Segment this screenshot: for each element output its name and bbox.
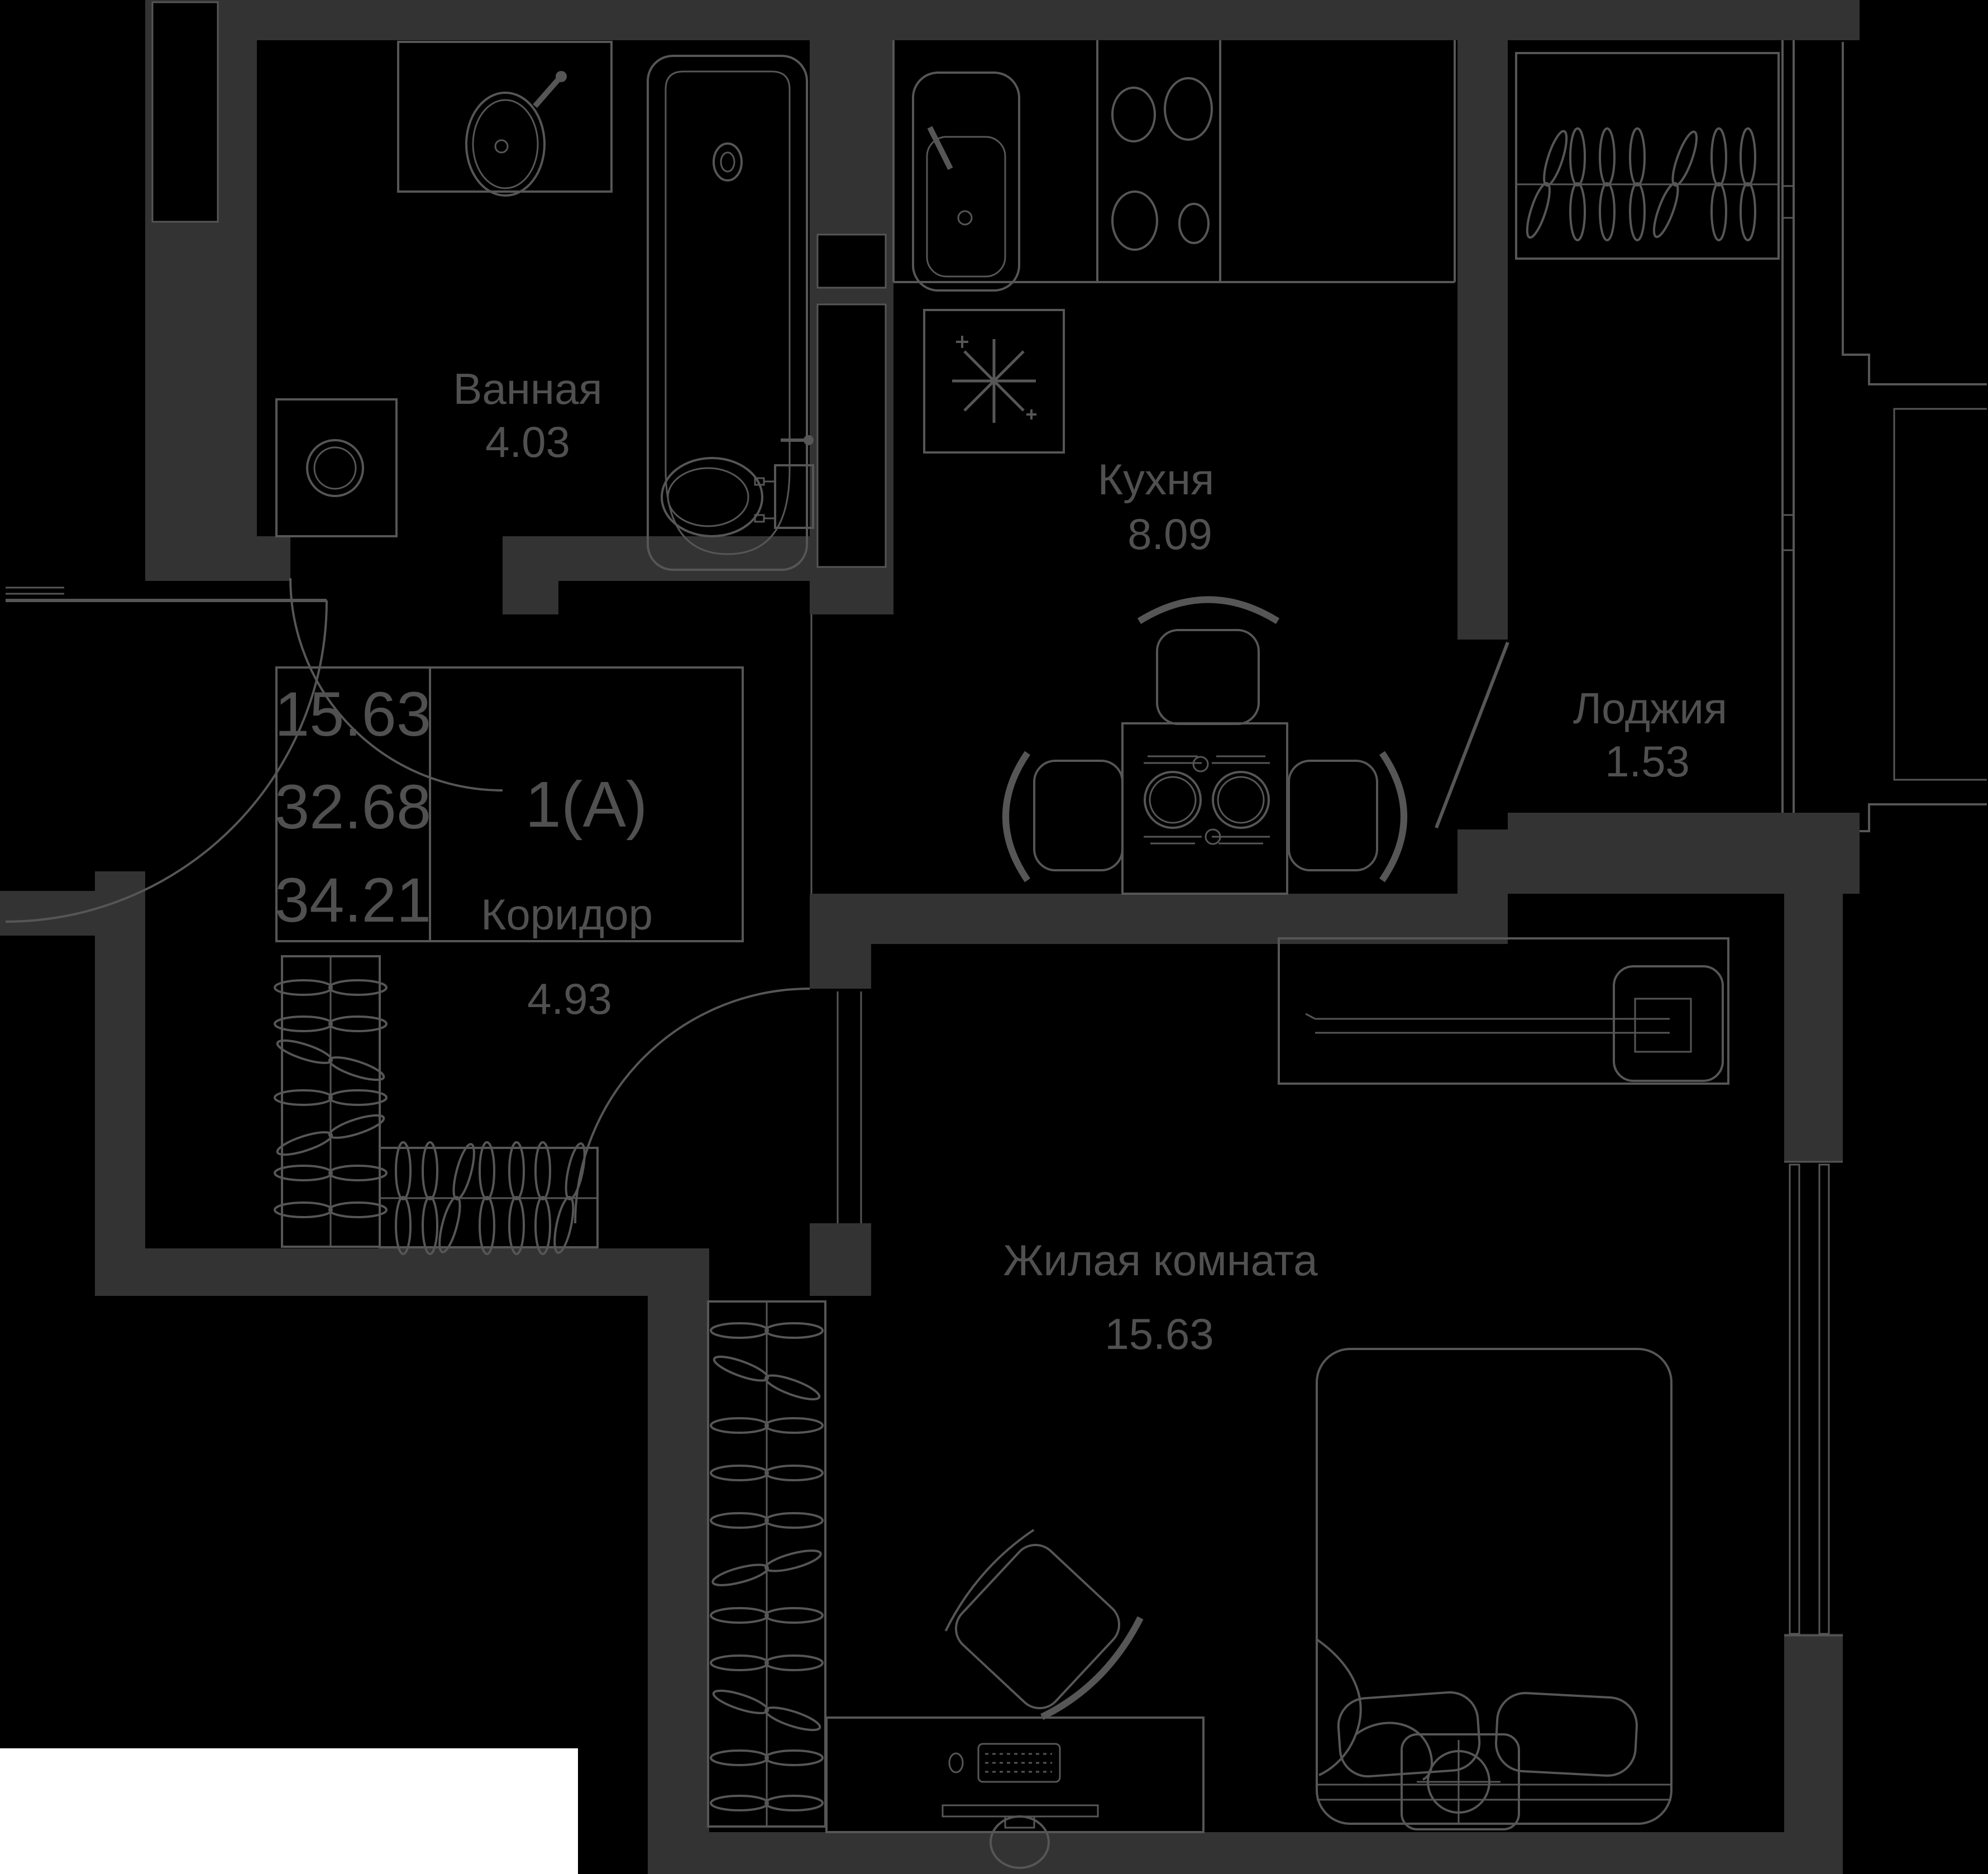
room-area-corridor: 4.93 <box>527 974 612 1023</box>
room-label-bathroom: Ванная <box>453 364 602 413</box>
room-area-loggia: 1.53 <box>1605 737 1690 786</box>
wall-segment <box>1508 813 1860 894</box>
total-area-value: 34.21 <box>275 865 431 935</box>
wall-segment <box>1457 40 1508 640</box>
room-area-kitchen: 8.09 <box>1127 509 1212 559</box>
unit-type-label: 1(А) <box>525 768 647 841</box>
shaft-icon <box>818 304 886 567</box>
apartment-area-value: 32.68 <box>275 772 431 842</box>
corner-block <box>0 1748 578 1874</box>
room-label-living: Жилая комната <box>1003 1236 1318 1285</box>
floor-plan-canvas: 15.63 32.68 34.21 1(А) Ванная 4.03 Кухня… <box>0 0 1988 1874</box>
wall-segment <box>810 944 871 989</box>
room-label-corridor: Коридор <box>481 890 653 939</box>
wall-segment <box>145 0 1860 40</box>
wall-segment <box>95 871 145 1296</box>
wall-segment <box>648 1832 1843 1874</box>
shaft-icon <box>152 2 218 222</box>
wall-segment <box>810 894 1508 944</box>
room-area-living: 15.63 <box>1105 1309 1213 1358</box>
shaft-icon <box>818 235 886 288</box>
wall-segment <box>810 1223 871 1296</box>
washing-machine-icon <box>276 399 396 536</box>
room-area-bathroom: 4.03 <box>485 417 570 466</box>
wall-segment <box>648 1248 709 1874</box>
wall-segment <box>1784 1634 1843 1874</box>
living-area-value: 15.63 <box>275 679 431 749</box>
fridge-icon <box>924 310 1064 452</box>
wall-segment <box>1457 829 1508 894</box>
room-label-kitchen: Кухня <box>1098 455 1215 504</box>
wall-segment <box>257 536 290 581</box>
floor-plan: 15.63 32.68 34.21 1(А) Ванная 4.03 Кухня… <box>0 0 1988 1874</box>
room-label-loggia: Лоджия <box>1573 684 1727 733</box>
wall-segment <box>503 581 558 614</box>
wall-segment <box>95 1248 709 1296</box>
wall-segment <box>1784 894 1843 1162</box>
